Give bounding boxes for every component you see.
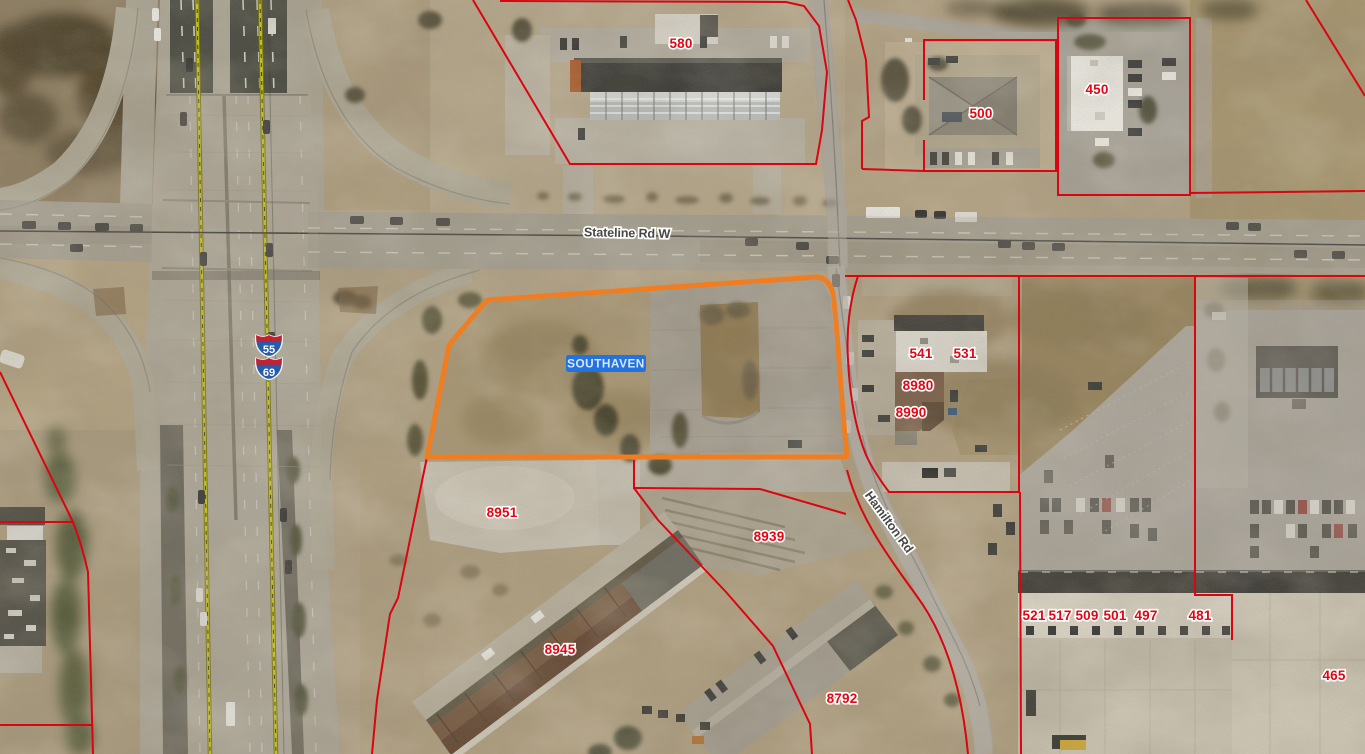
svg-text:531: 531: [953, 346, 976, 361]
svg-text:450: 450: [1085, 82, 1108, 97]
svg-text:521: 521: [1022, 608, 1045, 623]
svg-text:SOUTHAVEN: SOUTHAVEN: [567, 357, 645, 371]
svg-text:541: 541: [909, 346, 932, 361]
svg-text:465: 465: [1322, 668, 1345, 683]
svg-text:509: 509: [1075, 608, 1098, 623]
svg-text:Stateline Rd W: Stateline Rd W: [584, 225, 671, 241]
svg-text:481: 481: [1188, 608, 1211, 623]
svg-text:8939: 8939: [754, 529, 785, 544]
svg-text:8990: 8990: [896, 405, 927, 420]
svg-text:580: 580: [669, 36, 692, 51]
svg-text:8980: 8980: [903, 378, 934, 393]
svg-text:501: 501: [1103, 608, 1126, 623]
svg-text:497: 497: [1134, 608, 1157, 623]
svg-text:69: 69: [263, 367, 275, 379]
svg-text:500: 500: [969, 106, 992, 121]
svg-text:8792: 8792: [827, 691, 858, 706]
svg-text:8945: 8945: [545, 642, 576, 657]
svg-text:8951: 8951: [487, 505, 518, 520]
svg-text:517: 517: [1048, 608, 1071, 623]
svg-text:55: 55: [263, 344, 275, 356]
